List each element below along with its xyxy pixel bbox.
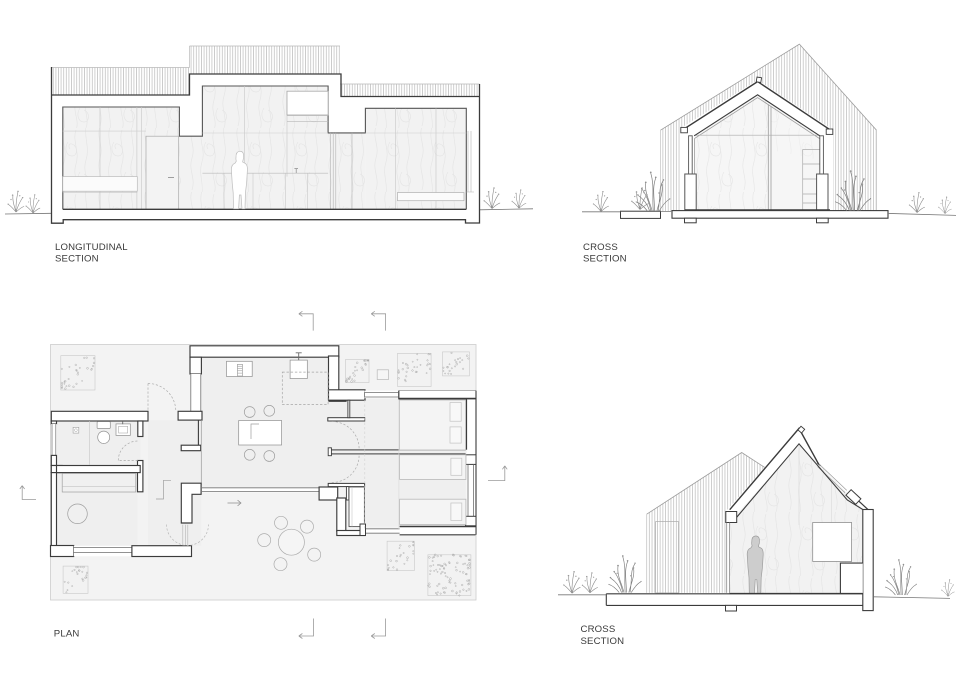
- svg-text:LONGITUDINAL: LONGITUDINAL: [55, 242, 128, 253]
- svg-text:PLAN: PLAN: [54, 628, 80, 639]
- svg-text:CROSS: CROSS: [581, 624, 616, 635]
- svg-text:SECTION: SECTION: [55, 254, 99, 265]
- svg-text:CROSS: CROSS: [583, 242, 618, 253]
- svg-text:SECTION: SECTION: [583, 254, 627, 265]
- svg-text:SECTION: SECTION: [581, 636, 625, 647]
